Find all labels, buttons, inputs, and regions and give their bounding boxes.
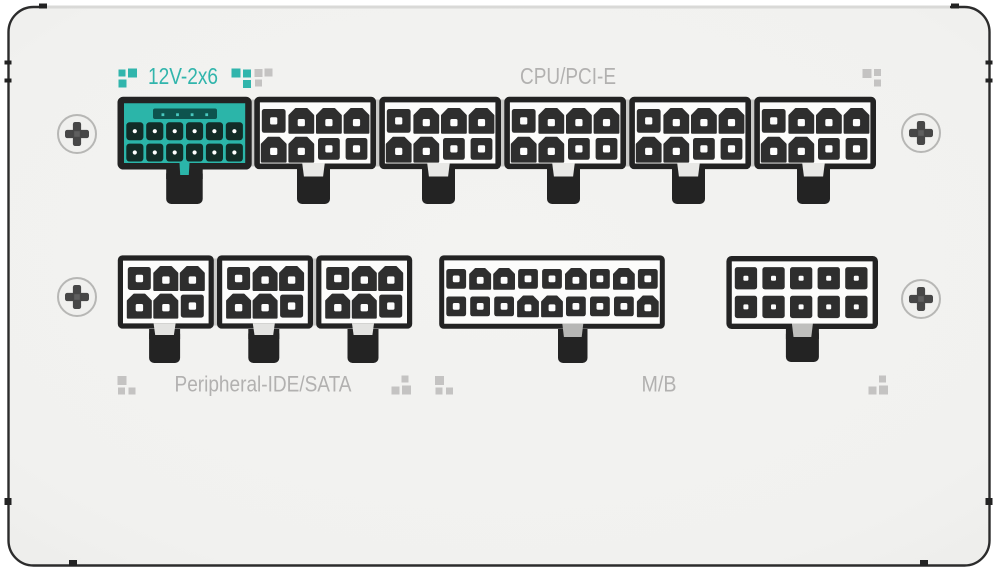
svg-text:CPU/PCI-E: CPU/PCI-E (520, 63, 616, 89)
svg-text:M/B: M/B (642, 372, 677, 397)
svg-text:Peripheral-IDE/SATA: Peripheral-IDE/SATA (175, 372, 352, 397)
svg-text:12V-2x6: 12V-2x6 (148, 63, 218, 89)
